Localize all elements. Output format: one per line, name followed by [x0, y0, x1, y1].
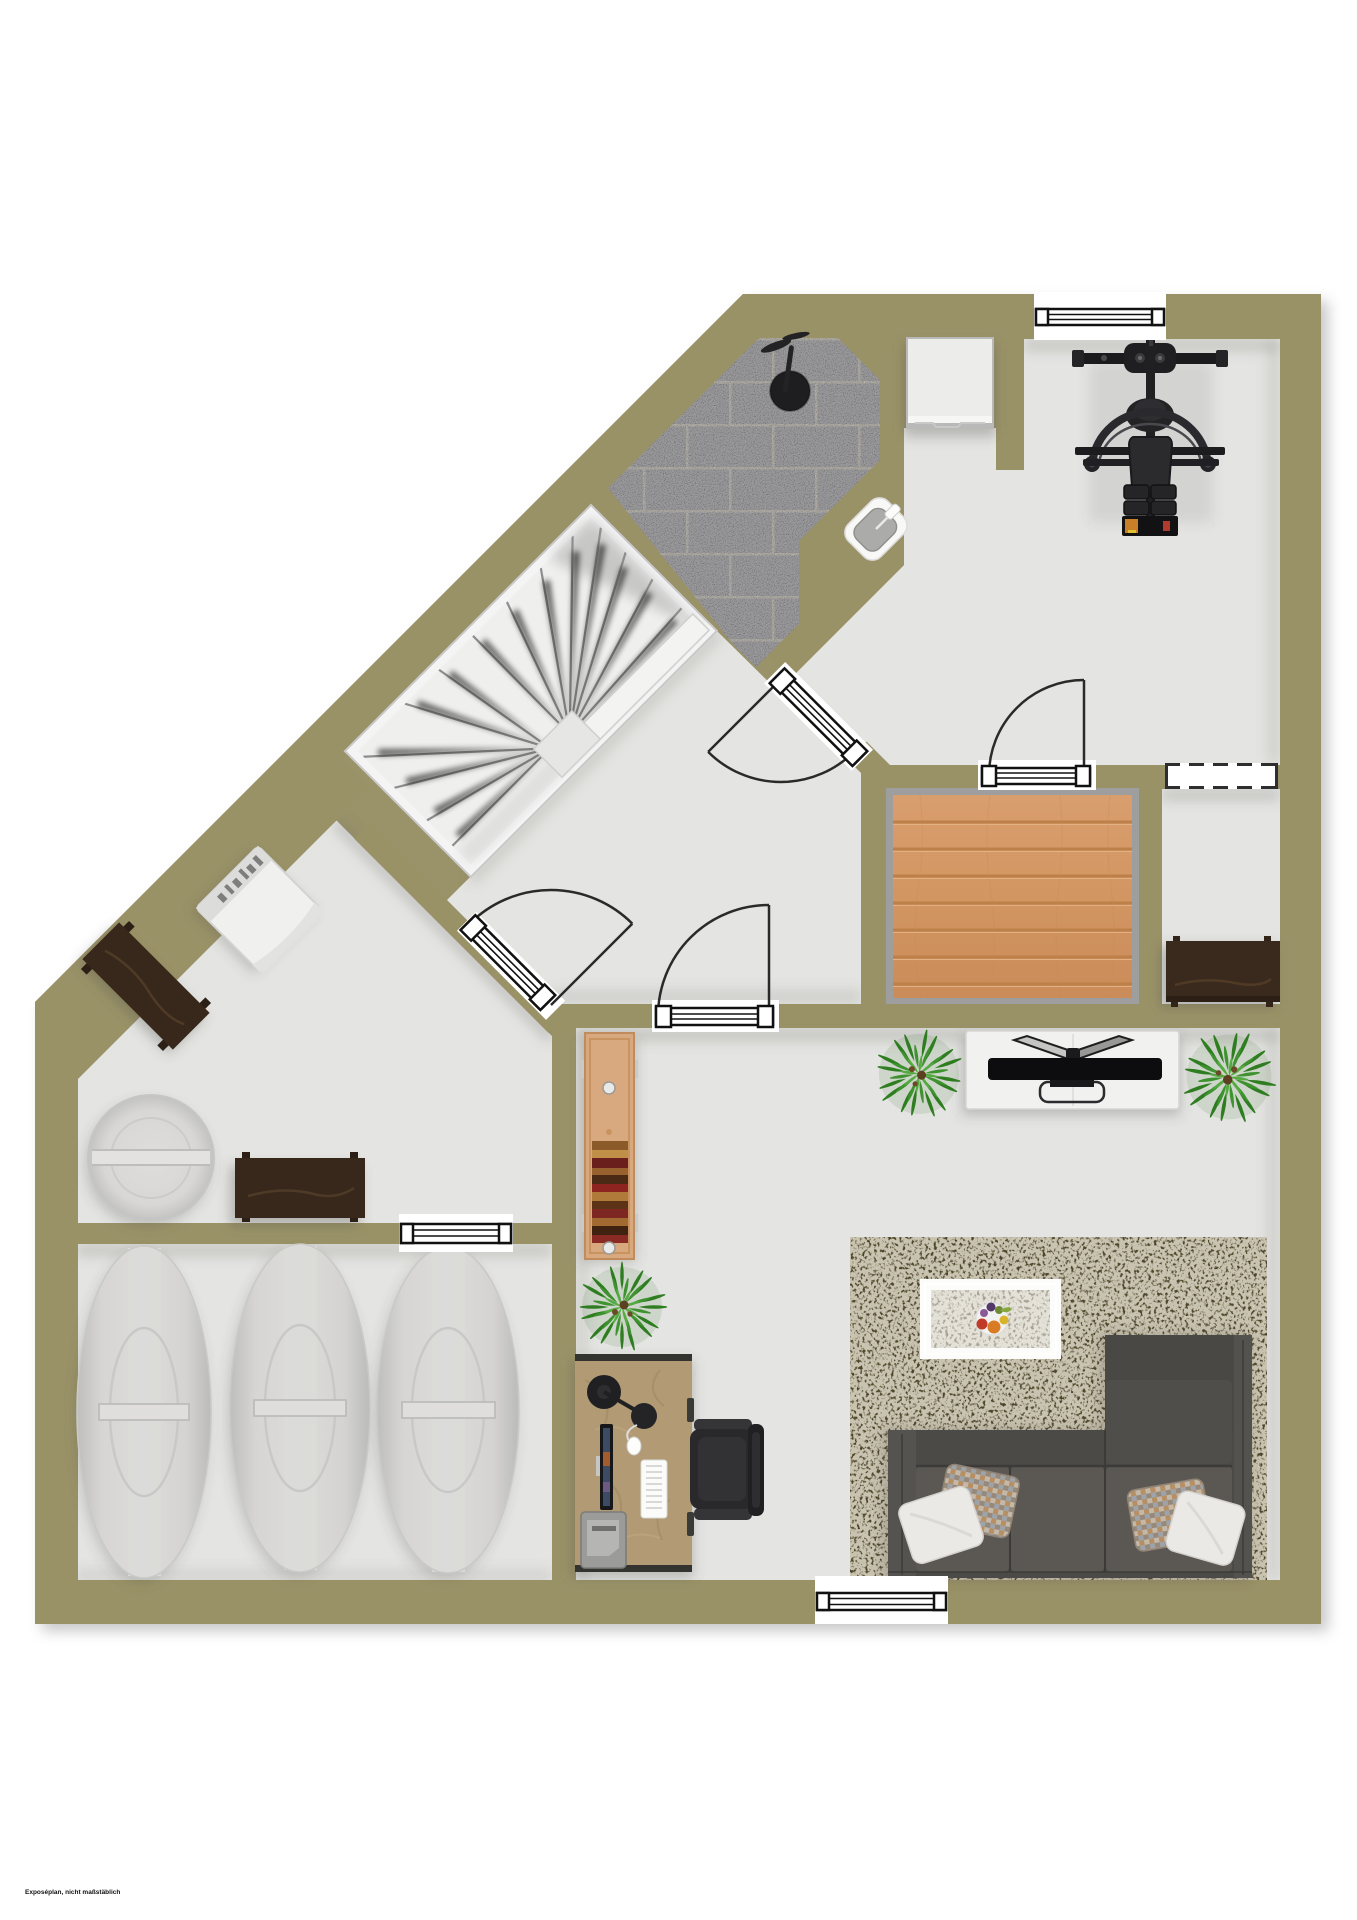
svg-text:Exposéplan, nicht maßstäblich: Exposéplan, nicht maßstäblich	[25, 1889, 120, 1896]
